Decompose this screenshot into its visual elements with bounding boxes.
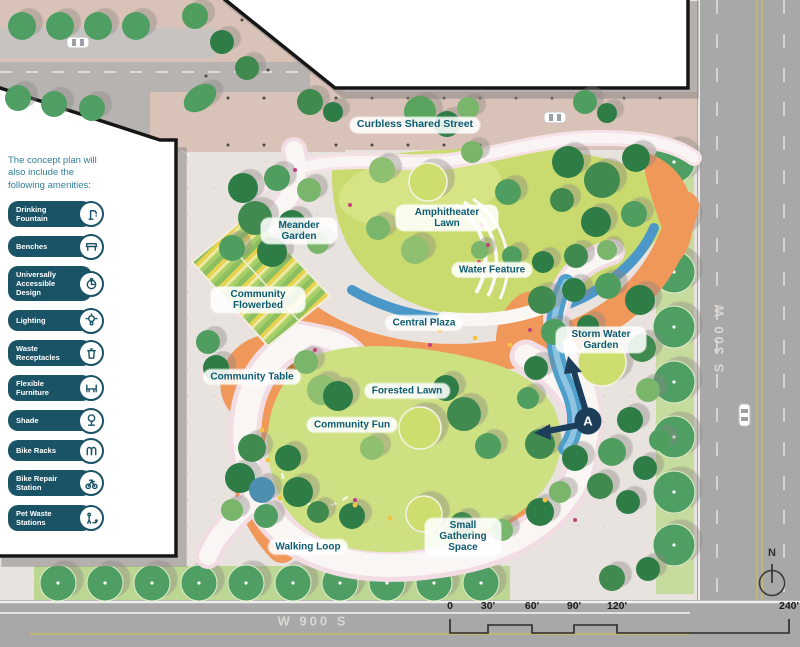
scale-bar-line	[438, 600, 800, 644]
bike-rack-icon	[78, 438, 104, 464]
label-curbless-shared-street: Curbless Shared Street	[350, 117, 480, 133]
legend-item-label: Bike Racks	[16, 446, 56, 455]
legend-item-label: Bike Repair Station	[16, 474, 76, 492]
legend-item-bike-repair-station: Bike Repair Station	[8, 470, 104, 496]
legend-item-lighting: Lighting	[8, 310, 104, 331]
legend-item-label: Universally Accessible Design	[16, 270, 76, 297]
legend-item-label: Benches	[16, 242, 47, 251]
label-walking-loop: Walking Loop	[268, 539, 347, 554]
marker-a-badge: A	[575, 408, 602, 435]
legend-items: Drinking Fountain Benches Universally Ac…	[8, 201, 112, 531]
label-community-table: Community Table	[203, 369, 300, 384]
label-community-flowerbed: Community Flowerbed	[211, 287, 305, 313]
legend-heading: The concept plan will also include the f…	[8, 155, 112, 192]
bench-icon	[78, 234, 104, 260]
legend-item-label: Waste Receptacles	[16, 344, 76, 362]
legend-item-pet-waste-stations: Pet Waste Stations	[8, 505, 104, 531]
label-forested-lawn: Forested Lawn	[365, 383, 450, 398]
legend-item-label: Flexible Furniture	[16, 379, 76, 397]
north-label: N	[754, 548, 790, 559]
amenities-legend: The concept plan will also include the f…	[8, 155, 112, 531]
legend-item-label: Lighting	[16, 316, 46, 325]
label-community-fun: Community Fun	[307, 417, 397, 432]
label-amphitheater-lawn: Amphitheater Lawn	[396, 205, 498, 231]
north-arrow-icon	[754, 559, 790, 599]
legend-item-bike-racks: Bike Racks	[8, 440, 104, 461]
accessible-icon	[78, 271, 104, 297]
car-icon	[544, 112, 566, 123]
label-water-feature: Water Feature	[452, 262, 532, 277]
park-concept-plan: The concept plan will also include the f…	[0, 0, 800, 647]
street-name-s-300-w: S 300 W	[712, 302, 727, 373]
waste-icon	[78, 340, 104, 366]
bike-repair-icon	[78, 470, 104, 496]
scale-bar: 0 30' 60' 90' 120' 240'	[438, 600, 800, 644]
shade-tree-icon	[78, 408, 104, 434]
label-small-gathering-space: Small Gathering Space	[425, 518, 501, 556]
street-name-w-900-s: W 900 S	[278, 614, 349, 629]
legend-item-benches: Benches	[8, 236, 104, 257]
label-meander-garden: Meander Garden	[261, 218, 337, 244]
label-storm-water-garden: Storm Water Garden	[556, 327, 646, 353]
legend-item-label: Shade	[16, 416, 39, 425]
drinking-fountain-icon	[78, 201, 104, 227]
lighting-icon	[78, 308, 104, 334]
furniture-icon	[78, 375, 104, 401]
legend-item-flexible-furniture: Flexible Furniture	[8, 375, 104, 401]
label-central-plaza: Central Plaza	[386, 315, 463, 330]
legend-item-shade: Shade	[8, 410, 104, 431]
north-arrow: N	[754, 548, 790, 602]
car-icon	[739, 404, 750, 426]
car-icon	[67, 37, 89, 48]
legend-item-waste-receptacles: Waste Receptacles	[8, 340, 104, 366]
legend-item-accessible-design: Universally Accessible Design	[8, 266, 104, 301]
legend-item-label: Pet Waste Stations	[16, 509, 76, 527]
legend-item-drinking-fountain: Drinking Fountain	[8, 201, 104, 227]
legend-item-label: Drinking Fountain	[16, 205, 76, 223]
pet-waste-icon	[78, 505, 104, 531]
